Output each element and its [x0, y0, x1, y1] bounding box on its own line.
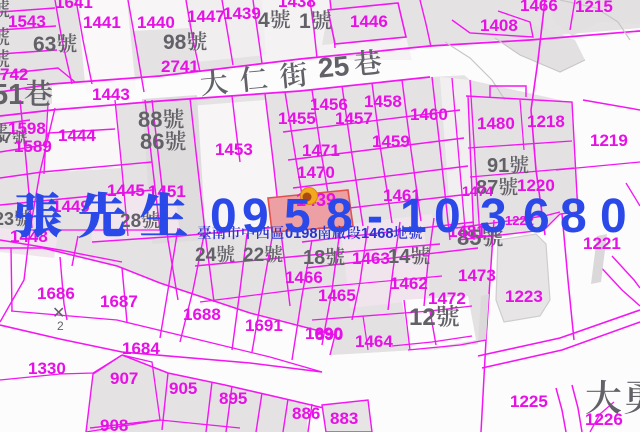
svg-text:1459: 1459 — [372, 132, 410, 151]
svg-text:1641: 1641 — [55, 0, 93, 12]
svg-text:1589: 1589 — [14, 137, 52, 156]
svg-text:1463: 1463 — [352, 249, 390, 268]
svg-text:1215: 1215 — [575, 0, 613, 16]
svg-text:91: 91 — [487, 155, 509, 177]
svg-text:895: 895 — [219, 389, 247, 408]
svg-text:1330: 1330 — [28, 359, 66, 378]
svg-text:1688: 1688 — [183, 305, 221, 324]
svg-text:1462: 1462 — [390, 274, 428, 293]
svg-text:86: 86 — [140, 129, 164, 154]
svg-text:24: 24 — [195, 245, 217, 266]
svg-text:1447: 1447 — [187, 7, 225, 26]
svg-text:1471: 1471 — [302, 141, 340, 160]
svg-text:6: 6 — [523, 190, 550, 243]
svg-text:1: 1 — [299, 10, 311, 33]
svg-text:1223: 1223 — [505, 287, 543, 306]
svg-text:2741: 2741 — [161, 57, 199, 76]
svg-text:1446: 1446 — [350, 12, 388, 31]
svg-text:1441: 1441 — [83, 13, 121, 32]
svg-text:1440: 1440 — [137, 13, 175, 32]
svg-text:9: 9 — [242, 190, 269, 243]
svg-text:1226: 1226 — [585, 410, 623, 429]
svg-text:18: 18 — [303, 247, 325, 269]
svg-text:1439: 1439 — [223, 4, 261, 23]
svg-text:1684: 1684 — [122, 339, 160, 358]
svg-text:1598: 1598 — [8, 119, 46, 138]
svg-text:-: - — [367, 190, 383, 243]
svg-text:1457: 1457 — [335, 109, 373, 128]
svg-text:1686: 1686 — [37, 284, 75, 303]
svg-text:1218: 1218 — [527, 112, 565, 131]
svg-text:907: 907 — [110, 369, 138, 388]
svg-text:908: 908 — [100, 416, 128, 432]
svg-text:1480: 1480 — [477, 114, 515, 133]
svg-text:0: 0 — [210, 190, 237, 243]
svg-text:8: 8 — [326, 190, 353, 243]
svg-text:5: 5 — [284, 190, 311, 243]
svg-text:1473: 1473 — [458, 266, 496, 285]
svg-text:1472: 1472 — [428, 289, 466, 308]
svg-text:1466: 1466 — [285, 268, 323, 287]
svg-text:22: 22 — [243, 245, 264, 266]
svg-text:1453: 1453 — [215, 140, 253, 159]
svg-text:1466: 1466 — [520, 0, 558, 15]
svg-text:1443: 1443 — [92, 85, 130, 104]
svg-text:14: 14 — [388, 246, 411, 268]
svg-text:905: 905 — [169, 379, 197, 398]
svg-text:1465: 1465 — [318, 286, 356, 305]
svg-text:1458: 1458 — [364, 92, 402, 111]
svg-text:25: 25 — [317, 50, 351, 84]
svg-text:98: 98 — [163, 31, 187, 54]
svg-text:1225: 1225 — [510, 392, 548, 411]
svg-text:0: 0 — [434, 190, 461, 243]
svg-text:883: 883 — [330, 409, 358, 428]
svg-text:1464: 1464 — [355, 332, 393, 351]
svg-text:886: 886 — [292, 404, 320, 423]
svg-text:1444: 1444 — [58, 126, 96, 145]
svg-text:1219: 1219 — [590, 131, 628, 150]
svg-text:3: 3 — [480, 190, 507, 243]
svg-text:1460: 1460 — [410, 105, 448, 124]
svg-text:1: 1 — [400, 190, 427, 243]
svg-text:742: 742 — [0, 65, 28, 84]
svg-text:1543: 1543 — [8, 12, 46, 31]
svg-text:8: 8 — [560, 190, 587, 243]
svg-text:63: 63 — [33, 33, 56, 56]
svg-text:23: 23 — [0, 209, 14, 229]
svg-text:2: 2 — [57, 319, 64, 333]
svg-text:1438: 1438 — [278, 0, 316, 11]
svg-text:890: 890 — [315, 325, 343, 344]
svg-text:12: 12 — [409, 304, 436, 331]
svg-text:1408: 1408 — [480, 16, 518, 35]
svg-text:1691: 1691 — [245, 316, 283, 335]
svg-text:1470: 1470 — [297, 163, 335, 182]
svg-text:1687: 1687 — [100, 292, 138, 311]
svg-text:1445: 1445 — [107, 181, 145, 200]
svg-text:0: 0 — [600, 190, 627, 243]
